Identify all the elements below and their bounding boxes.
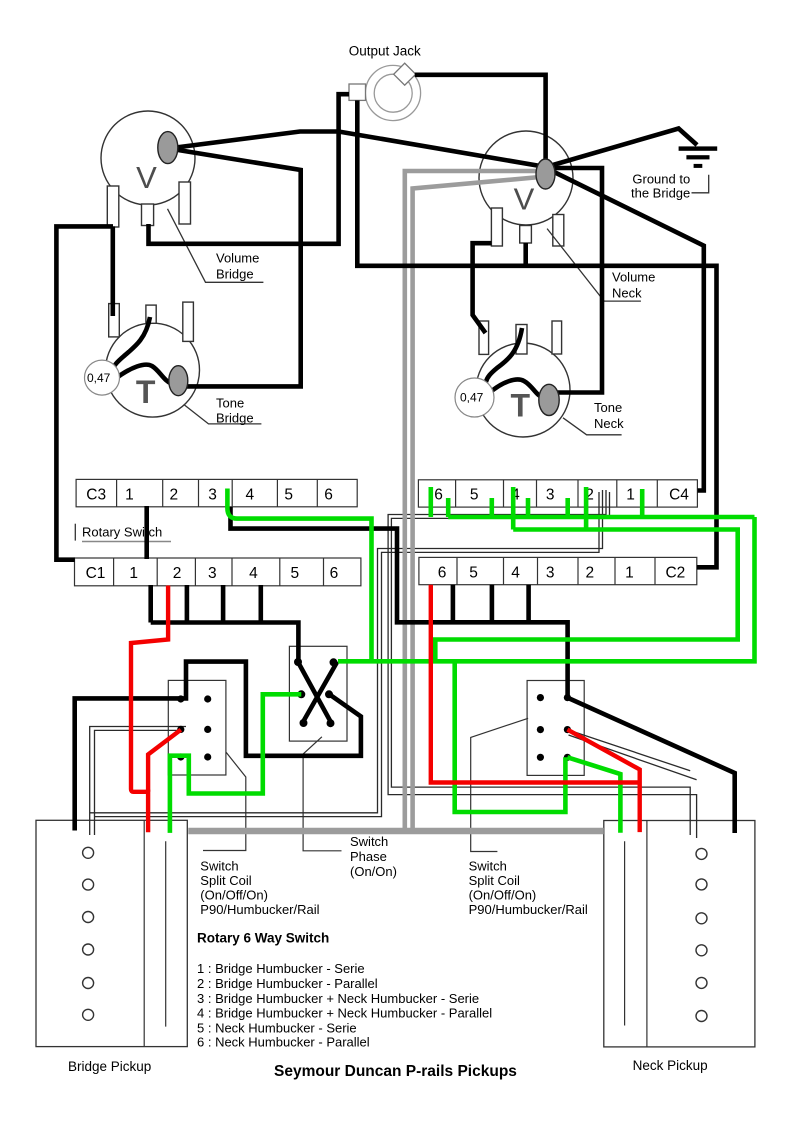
- svg-text:4: 4: [245, 487, 254, 504]
- svg-text:6: 6: [438, 565, 447, 582]
- svg-text:Tone: Tone: [216, 396, 244, 411]
- svg-text:5: 5: [470, 487, 479, 504]
- svg-text:Seymour Duncan P-rails Pickups: Seymour Duncan P-rails Pickups: [274, 1063, 517, 1080]
- svg-text:C2: C2: [665, 565, 685, 582]
- svg-text:C3: C3: [86, 487, 106, 504]
- svg-text:Phase: Phase: [350, 849, 387, 864]
- svg-text:Output Jack: Output Jack: [349, 44, 421, 59]
- svg-text:2: 2: [173, 565, 182, 582]
- svg-text:6 : Neck Humbucker - Parallel: 6 : Neck Humbucker - Parallel: [197, 1034, 370, 1049]
- svg-text:2 : Bridge Humbucker - Paralle: 2 : Bridge Humbucker - Parallel: [197, 976, 378, 991]
- svg-text:Bridge Pickup: Bridge Pickup: [68, 1059, 151, 1074]
- svg-text:4: 4: [511, 565, 520, 582]
- svg-text:1: 1: [125, 487, 134, 504]
- svg-text:Tone: Tone: [594, 400, 622, 415]
- svg-text:0,47: 0,47: [460, 391, 484, 405]
- svg-text:Rotary 6 Way Switch: Rotary 6 Way Switch: [197, 931, 329, 946]
- svg-text:2: 2: [585, 565, 594, 582]
- svg-text:1: 1: [129, 565, 138, 582]
- svg-text:(On/Off/On): (On/Off/On): [200, 888, 268, 903]
- svg-text:5: 5: [469, 565, 478, 582]
- svg-text:4 : Bridge Humbucker + Neck Hu: 4 : Bridge Humbucker + Neck Humbucker - …: [197, 1006, 492, 1021]
- svg-text:Switch: Switch: [200, 859, 238, 874]
- svg-text:3: 3: [208, 565, 217, 582]
- svg-text:4: 4: [249, 565, 258, 582]
- svg-text:Rotary Switch: Rotary Switch: [82, 525, 162, 540]
- svg-text:0,47: 0,47: [87, 371, 111, 385]
- svg-text:6: 6: [324, 487, 333, 504]
- svg-text:Split Coil: Split Coil: [200, 873, 251, 888]
- svg-text:V: V: [136, 160, 157, 195]
- svg-text:Ground to: Ground to: [632, 172, 690, 187]
- svg-text:1: 1: [625, 565, 634, 582]
- svg-text:1: 1: [626, 487, 635, 504]
- svg-text:C1: C1: [86, 565, 106, 582]
- svg-text:C4: C4: [669, 487, 689, 504]
- svg-text:Split Coil: Split Coil: [469, 873, 520, 888]
- svg-text:3 : Bridge Humbucker + Neck Hu: 3 : Bridge Humbucker + Neck Humbucker - …: [197, 991, 479, 1006]
- svg-text:the Bridge: the Bridge: [631, 186, 690, 201]
- svg-text:Bridge: Bridge: [216, 267, 254, 282]
- svg-text:Switch: Switch: [469, 859, 507, 874]
- svg-text:3: 3: [208, 487, 217, 504]
- svg-text:6: 6: [434, 487, 443, 504]
- svg-text:3: 3: [546, 565, 555, 582]
- svg-text:Switch: Switch: [350, 834, 388, 849]
- svg-text:6: 6: [330, 565, 339, 582]
- svg-text:5 : Neck Humbucker - Serie: 5 : Neck Humbucker - Serie: [197, 1020, 357, 1035]
- svg-text:T: T: [136, 374, 156, 410]
- svg-text:5: 5: [290, 565, 299, 582]
- svg-text:(On/On): (On/On): [350, 864, 397, 879]
- svg-text:P90/Humbucker/Rail: P90/Humbucker/Rail: [200, 902, 319, 917]
- svg-text:2: 2: [169, 487, 178, 504]
- svg-text:Neck Pickup: Neck Pickup: [633, 1058, 708, 1073]
- svg-text:Neck: Neck: [594, 416, 624, 431]
- svg-text:3: 3: [546, 487, 555, 504]
- svg-text:Neck: Neck: [612, 286, 642, 301]
- svg-text:5: 5: [284, 487, 293, 504]
- svg-text:1 : Bridge Humbucker - Serie: 1 : Bridge Humbucker - Serie: [197, 961, 365, 976]
- svg-text:T: T: [511, 387, 531, 423]
- svg-text:(On/Off/On): (On/Off/On): [469, 888, 537, 903]
- svg-text:Volume: Volume: [612, 270, 655, 285]
- svg-text:Volume: Volume: [216, 251, 259, 266]
- svg-text:Bridge: Bridge: [216, 411, 254, 426]
- svg-text:V: V: [514, 182, 535, 217]
- svg-text:P90/Humbucker/Rail: P90/Humbucker/Rail: [469, 902, 588, 917]
